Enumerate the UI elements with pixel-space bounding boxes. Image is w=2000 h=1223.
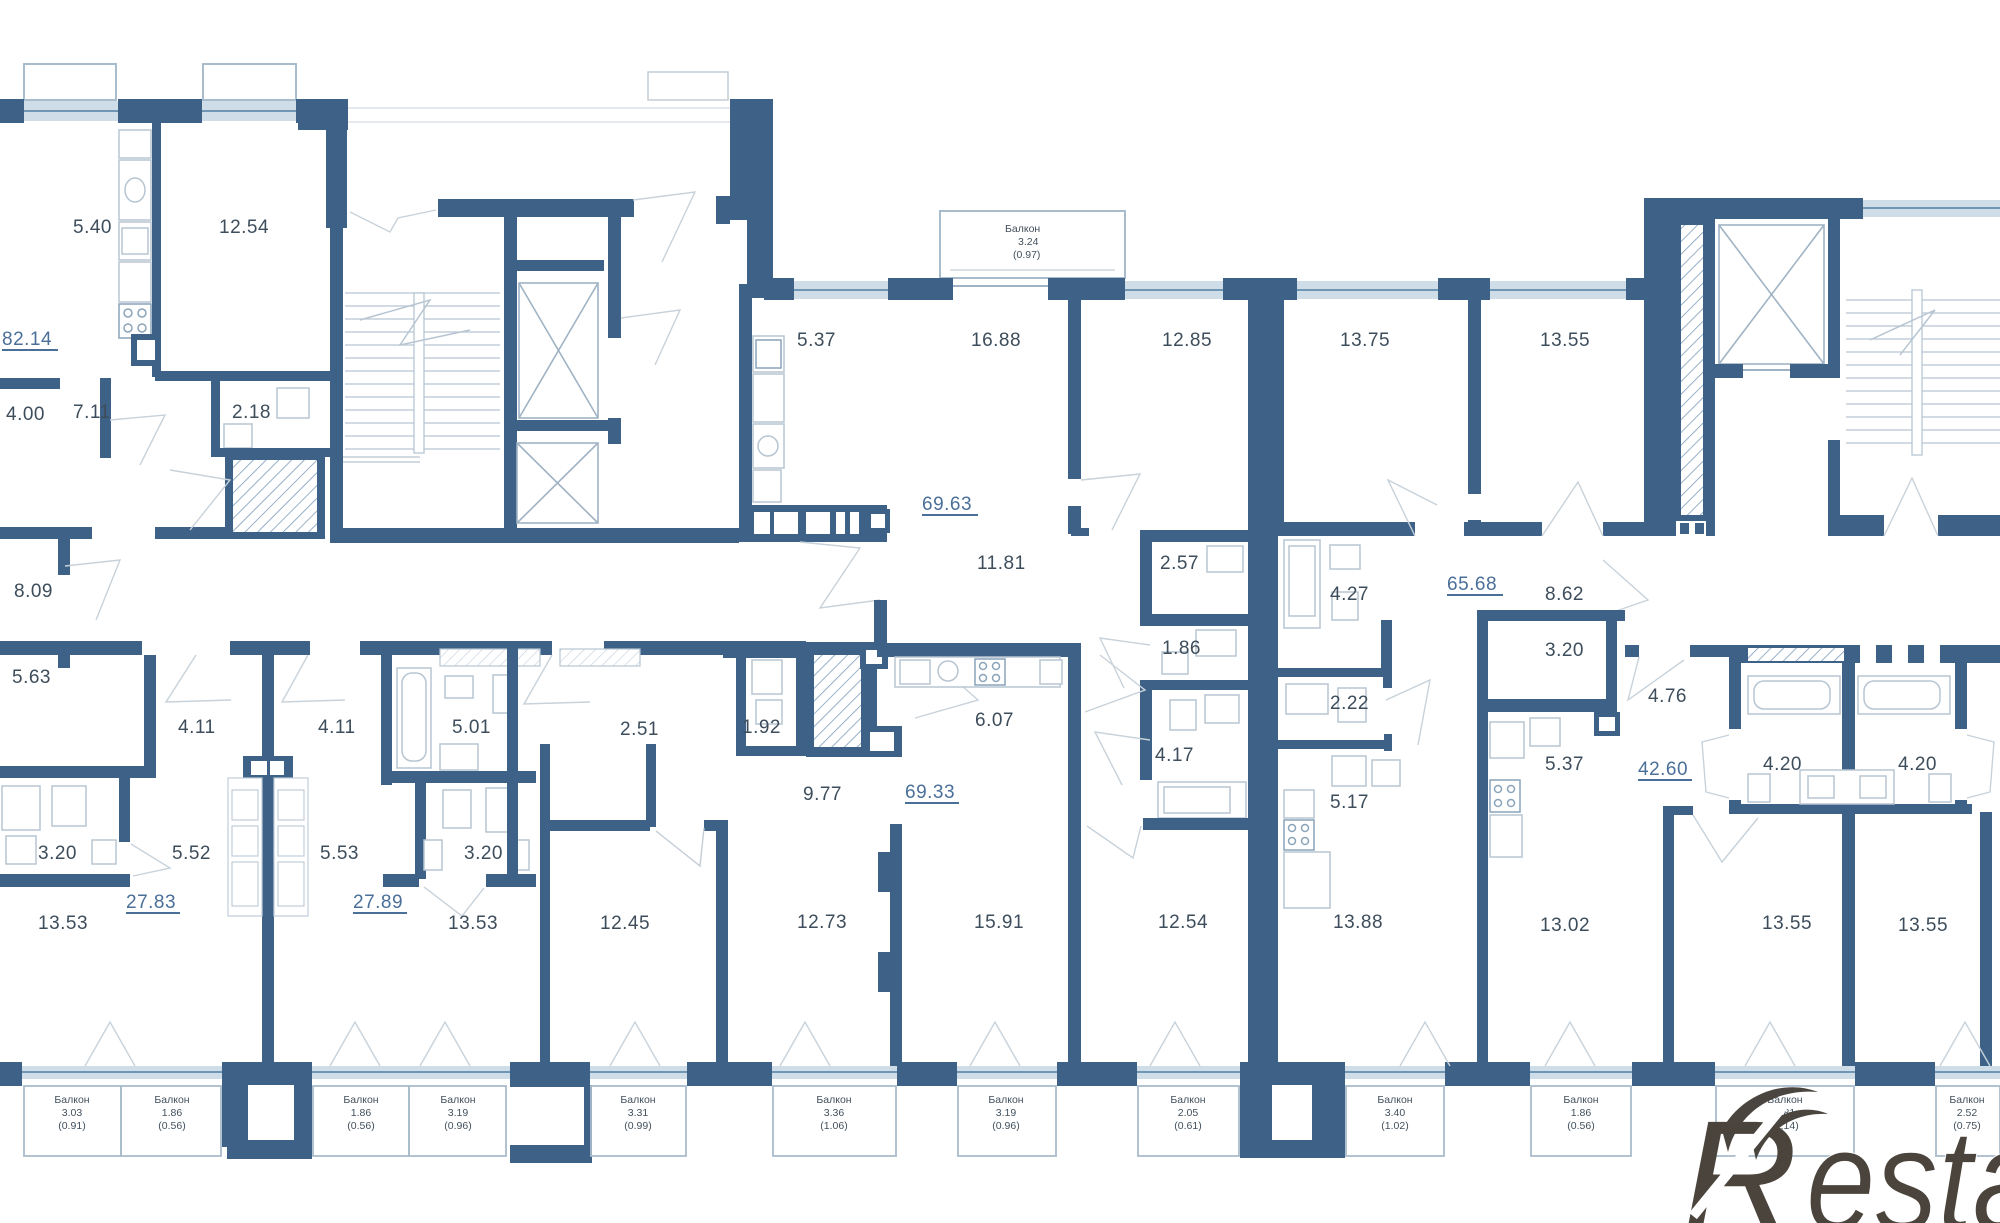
svg-text:estate: estate bbox=[1806, 1099, 2000, 1223]
svg-text:12.73: 12.73 bbox=[797, 912, 847, 933]
svg-text:5.01: 5.01 bbox=[452, 717, 491, 738]
svg-text:3.19: 3.19 bbox=[448, 1107, 469, 1119]
svg-text:4.20: 4.20 bbox=[1763, 754, 1802, 775]
svg-text:42.60: 42.60 bbox=[1638, 759, 1688, 780]
svg-text:4.00: 4.00 bbox=[6, 404, 45, 425]
svg-text:12.45: 12.45 bbox=[600, 913, 650, 934]
svg-text:(0.96): (0.96) bbox=[992, 1120, 1019, 1132]
svg-text:3.19: 3.19 bbox=[996, 1107, 1017, 1119]
svg-text:5.63: 5.63 bbox=[12, 667, 51, 688]
svg-text:5.40: 5.40 bbox=[73, 217, 112, 238]
svg-text:(0.99): (0.99) bbox=[624, 1120, 651, 1132]
svg-text:69.33: 69.33 bbox=[905, 782, 955, 803]
svg-text:8.62: 8.62 bbox=[1545, 584, 1584, 605]
svg-text:Балкон: Балкон bbox=[988, 1094, 1023, 1106]
svg-text:5.37: 5.37 bbox=[797, 330, 836, 351]
svg-text:3.31: 3.31 bbox=[628, 1107, 649, 1119]
svg-text:15.91: 15.91 bbox=[974, 912, 1024, 933]
svg-text:4.27: 4.27 bbox=[1330, 584, 1369, 605]
svg-text:3.20: 3.20 bbox=[1545, 640, 1584, 661]
svg-text:69.63: 69.63 bbox=[922, 494, 972, 515]
svg-text:5.17: 5.17 bbox=[1330, 792, 1369, 813]
svg-text:4.11: 4.11 bbox=[178, 717, 216, 738]
svg-text:Балкон: Балкон bbox=[54, 1094, 89, 1106]
svg-text:2.05: 2.05 bbox=[1178, 1107, 1199, 1119]
svg-text:3.20: 3.20 bbox=[464, 843, 503, 864]
svg-text:12.54: 12.54 bbox=[219, 217, 269, 238]
svg-text:16.88: 16.88 bbox=[971, 330, 1021, 351]
svg-text:13.53: 13.53 bbox=[38, 913, 88, 934]
svg-text:4.11: 4.11 bbox=[318, 717, 356, 738]
svg-text:Балкон: Балкон bbox=[620, 1094, 655, 1106]
svg-text:(0.56): (0.56) bbox=[158, 1120, 185, 1132]
svg-text:2.51: 2.51 bbox=[620, 719, 659, 740]
svg-text:Балкон: Балкон bbox=[440, 1094, 475, 1106]
svg-text:(0.91): (0.91) bbox=[58, 1120, 85, 1132]
svg-text:6.07: 6.07 bbox=[975, 710, 1014, 731]
svg-text:11.81: 11.81 bbox=[977, 553, 1026, 574]
svg-text:3.36: 3.36 bbox=[824, 1107, 845, 1119]
svg-text:7.11: 7.11 bbox=[73, 402, 111, 423]
svg-text:27.83: 27.83 bbox=[126, 892, 176, 913]
svg-text:82.14: 82.14 bbox=[2, 329, 52, 350]
svg-text:12.85: 12.85 bbox=[1162, 330, 1212, 351]
svg-text:(0.56): (0.56) bbox=[347, 1120, 374, 1132]
svg-text:1.86: 1.86 bbox=[162, 1107, 183, 1119]
svg-text:(1.06): (1.06) bbox=[820, 1120, 847, 1132]
svg-text:2.57: 2.57 bbox=[1160, 553, 1199, 574]
svg-text:9.77: 9.77 bbox=[803, 784, 842, 805]
svg-text:(1.02): (1.02) bbox=[1381, 1120, 1408, 1132]
svg-text:13.53: 13.53 bbox=[448, 913, 498, 934]
svg-text:13.88: 13.88 bbox=[1333, 912, 1383, 933]
svg-text:5.52: 5.52 bbox=[172, 843, 211, 864]
svg-text:Балкон: Балкон bbox=[1170, 1094, 1205, 1106]
svg-text:65.68: 65.68 bbox=[1447, 574, 1497, 595]
svg-text:12.54: 12.54 bbox=[1158, 912, 1208, 933]
svg-text:3.24: 3.24 bbox=[1018, 236, 1039, 248]
svg-text:1.86: 1.86 bbox=[351, 1107, 372, 1119]
svg-text:8.09: 8.09 bbox=[14, 581, 53, 602]
svg-text:4.17: 4.17 bbox=[1155, 745, 1194, 766]
svg-text:13.55: 13.55 bbox=[1540, 330, 1590, 351]
svg-text:13.02: 13.02 bbox=[1540, 915, 1590, 936]
svg-text:Балкон: Балкон bbox=[1563, 1094, 1598, 1106]
svg-text:13.55: 13.55 bbox=[1762, 913, 1812, 934]
svg-text:2.18: 2.18 bbox=[232, 402, 271, 423]
svg-text:13.55: 13.55 bbox=[1898, 915, 1948, 936]
svg-text:Балкон: Балкон bbox=[343, 1094, 378, 1106]
svg-text:3.20: 3.20 bbox=[38, 843, 77, 864]
svg-text:1.92: 1.92 bbox=[742, 717, 781, 738]
svg-text:Балкон: Балкон bbox=[816, 1094, 851, 1106]
svg-text:(0.56): (0.56) bbox=[1567, 1120, 1594, 1132]
svg-text:(0.96): (0.96) bbox=[444, 1120, 471, 1132]
svg-text:5.53: 5.53 bbox=[320, 843, 359, 864]
svg-text:1.86: 1.86 bbox=[1162, 638, 1201, 659]
svg-text:13.75: 13.75 bbox=[1340, 330, 1390, 351]
svg-text:1.86: 1.86 bbox=[1571, 1107, 1592, 1119]
svg-text:(0.97): (0.97) bbox=[1013, 249, 1040, 261]
svg-text:4.76: 4.76 bbox=[1648, 686, 1687, 707]
svg-text:3.40: 3.40 bbox=[1385, 1107, 1406, 1119]
svg-text:(0.61): (0.61) bbox=[1174, 1120, 1201, 1132]
svg-text:Балкон: Балкон bbox=[1005, 223, 1040, 235]
svg-text:Балкон: Балкон bbox=[1377, 1094, 1412, 1106]
svg-text:3.03: 3.03 bbox=[62, 1107, 83, 1119]
svg-text:Балкон: Балкон bbox=[154, 1094, 189, 1106]
svg-text:2.22: 2.22 bbox=[1330, 693, 1369, 714]
svg-text:27.89: 27.89 bbox=[353, 892, 403, 913]
svg-text:4.20: 4.20 bbox=[1898, 754, 1937, 775]
svg-text:5.37: 5.37 bbox=[1545, 754, 1584, 775]
